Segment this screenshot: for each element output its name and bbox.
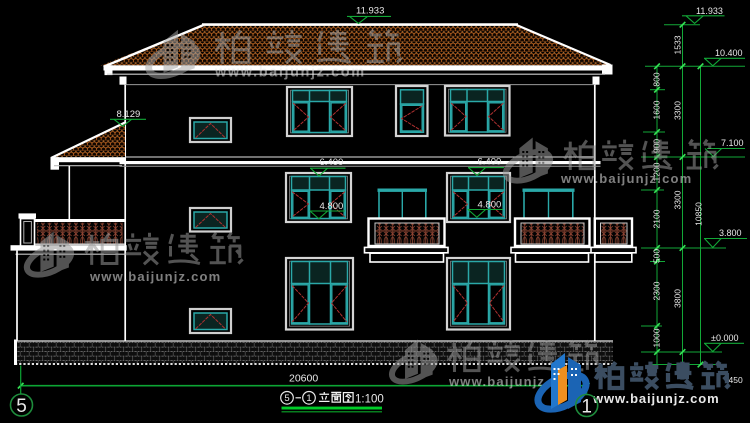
svg-text:3.800: 3.800	[719, 228, 742, 238]
svg-text:2300: 2300	[652, 281, 662, 300]
svg-text:3800: 3800	[673, 289, 683, 308]
svg-text:6.400: 6.400	[320, 157, 344, 168]
svg-text:450: 450	[729, 375, 743, 385]
svg-text:1:100: 1:100	[355, 394, 384, 406]
svg-text:1600: 1600	[652, 100, 662, 119]
svg-text:www.baijunjz.com: www.baijunjz.com	[89, 269, 221, 284]
svg-text:11.933: 11.933	[696, 6, 723, 16]
svg-text:1000: 1000	[652, 328, 662, 347]
svg-text:10.400: 10.400	[715, 48, 743, 58]
svg-text:8.129: 8.129	[117, 109, 141, 120]
svg-text:10850: 10850	[694, 202, 704, 226]
svg-text:11.933: 11.933	[356, 6, 384, 17]
svg-text:±0.000: ±0.000	[711, 333, 738, 343]
svg-text:2100: 2100	[652, 209, 662, 228]
svg-text:3300: 3300	[673, 101, 683, 120]
svg-text:4.800: 4.800	[478, 199, 502, 210]
svg-text:5: 5	[284, 393, 289, 404]
svg-text:800: 800	[652, 72, 662, 86]
svg-text:20600: 20600	[289, 373, 318, 385]
svg-text:5: 5	[16, 396, 27, 417]
svg-text:6.400: 6.400	[478, 157, 502, 168]
svg-text:7.100: 7.100	[721, 138, 744, 148]
svg-text:1: 1	[581, 397, 592, 418]
svg-text:1533: 1533	[673, 35, 683, 54]
svg-text:3300: 3300	[673, 190, 683, 209]
svg-text:www.baijunjz.com: www.baijunjz.com	[560, 171, 692, 186]
svg-text:4.800: 4.800	[320, 201, 344, 212]
svg-text:www.baijunjz.com: www.baijunjz.com	[214, 65, 366, 81]
svg-text:500: 500	[652, 249, 662, 263]
svg-text:www.baijunjz.com: www.baijunjz.com	[592, 391, 720, 406]
svg-text:1: 1	[306, 393, 311, 404]
